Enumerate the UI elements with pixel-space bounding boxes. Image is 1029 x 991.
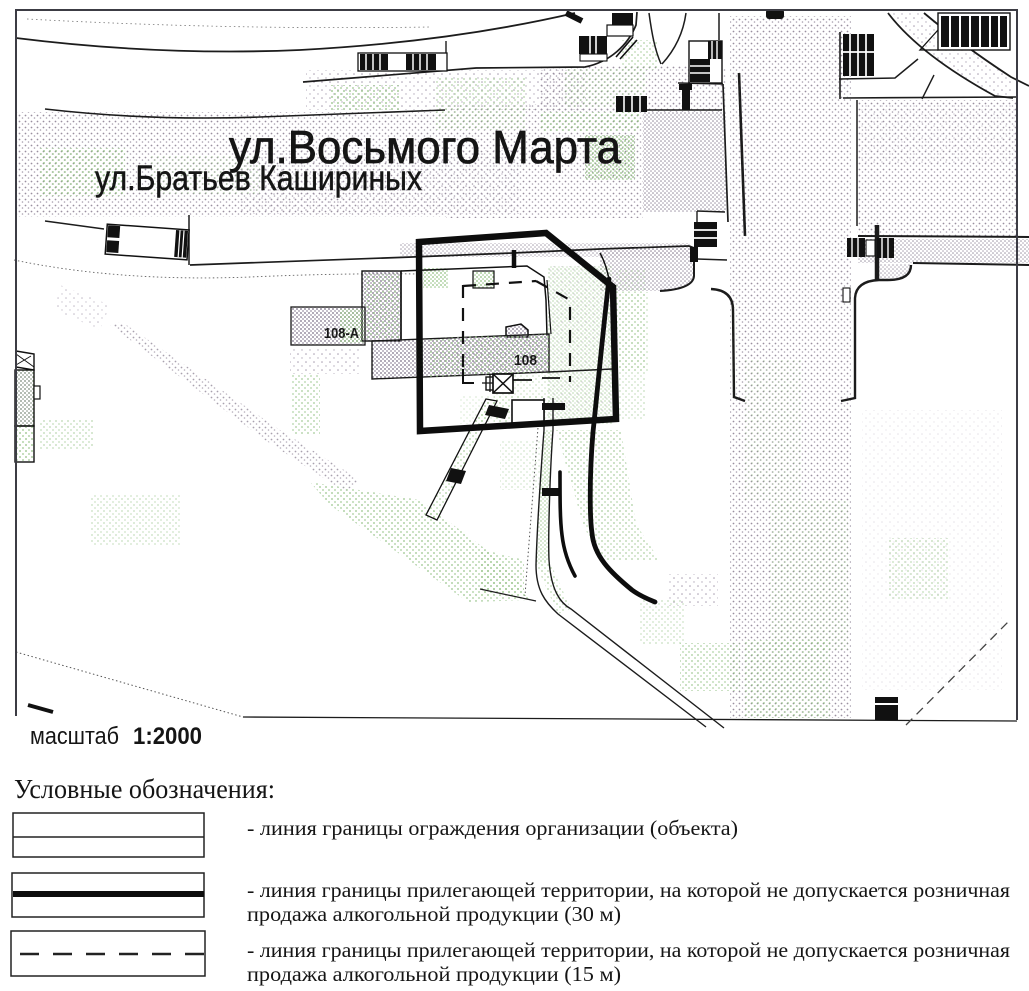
svg-text:- линия границы прилегающей те: - линия границы прилегающей территории, …: [247, 938, 1010, 962]
svg-text:ул.Братьев Кашириных: ул.Братьев Кашириных: [95, 159, 422, 198]
svg-text:масштаб: масштаб: [30, 723, 119, 750]
svg-text:продажа алкогольной продукции: продажа алкогольной продукции (15 м): [247, 962, 621, 986]
svg-text:108-A: 108-A: [324, 325, 359, 342]
svg-text:108: 108: [514, 352, 537, 369]
svg-text:- линия границы прилегающей те: - линия границы прилегающей территории, …: [247, 878, 1010, 902]
svg-text:Условные обозначения:: Условные обозначения:: [14, 774, 275, 804]
svg-text:1:2000: 1:2000: [133, 723, 202, 750]
svg-text:продажа алкогольной продукции: продажа алкогольной продукции (30 м): [247, 902, 621, 926]
svg-text:- линия границы ограждения орг: - линия границы ограждения организации (…: [247, 816, 738, 840]
